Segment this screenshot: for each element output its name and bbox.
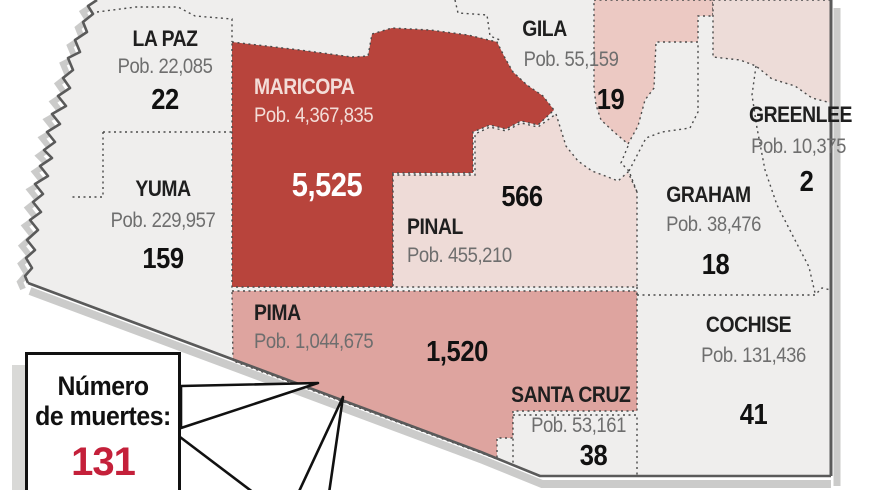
county-population-yuma: Pob. 229,957 [93, 209, 234, 233]
callout-value: 131 [28, 440, 178, 485]
county-name-la-paz: LA PAZ [103, 26, 226, 52]
county-deaths-pinal: 566 [482, 181, 561, 214]
county-deaths-graham: 18 [687, 249, 744, 282]
county-population-greenlee: Pob. 10,375 [739, 135, 858, 159]
callout-label-line1: Número [34, 371, 172, 401]
county-name-yuma: YUMA [101, 176, 224, 202]
east-border-shadow [834, 8, 841, 486]
county-name-greenlee: GREENLEE [741, 102, 860, 128]
county-population-la-paz: Pob. 22,085 [103, 55, 226, 79]
county-population-pima: Pob. 1,044,675 [254, 330, 395, 354]
county-name-graham: GRAHAM [654, 182, 764, 208]
county-name-pima: PIMA [254, 300, 360, 326]
county-deaths-santa-cruz: 38 [565, 440, 622, 473]
deaths-legend-callout: Número de muertes: 131 [25, 352, 181, 490]
county-name-santa-cruz: SANTA CRUZ [511, 382, 630, 408]
county-name-cochise: COCHISE [694, 312, 804, 338]
county-population-cochise: Pob. 131,436 [694, 344, 813, 368]
county-deaths-yuma: 159 [110, 243, 216, 276]
county-deaths-gila: 19 [582, 84, 639, 117]
county-deaths-maricopa: 5,525 [270, 166, 384, 204]
county-deaths-greenlee: 2 [778, 166, 835, 199]
county-population-maricopa: Pob. 4,367,835 [254, 104, 430, 128]
county-deaths-pima: 1,520 [417, 336, 496, 369]
callout-label-line2: de muertes: [34, 401, 172, 431]
county-name-gila: GILA [507, 16, 582, 42]
county-deaths-la-paz: 22 [103, 84, 226, 117]
county-name-maricopa: MARICOPA [254, 74, 430, 100]
arizona-deaths-map: LA PAZ Pob. 22,085 22 YUMA Pob. 229,957 … [0, 0, 871, 490]
county-population-graham: Pob. 38,476 [654, 213, 773, 237]
county-population-pinal: Pob. 455,210 [407, 244, 557, 268]
county-deaths-cochise: 41 [725, 399, 782, 432]
county-name-pinal: PINAL [407, 214, 513, 240]
county-population-santa-cruz: Pob. 53,161 [519, 414, 638, 438]
county-population-gila: Pob. 55,159 [514, 48, 628, 72]
